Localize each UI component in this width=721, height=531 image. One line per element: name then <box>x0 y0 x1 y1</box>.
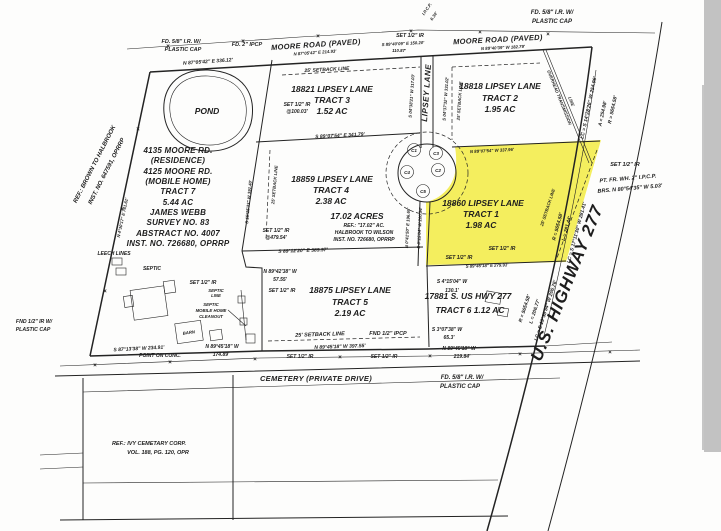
note-pt-fr-1: PT. FR. WH. 2" I.P.C.P. <box>599 173 657 184</box>
tract5-setback-label: 25' SETBACK LINE <box>294 331 345 339</box>
tract2-line-3: 1.95 AC <box>485 104 517 114</box>
cemetery-parcel-mid-line <box>83 480 498 483</box>
fence-x-icon: × <box>608 350 612 356</box>
bearing-s043821-317: S 04°38'21" W 317.03' <box>407 73 415 118</box>
tract7-label: 4135 MOORE RD. (RESIDENCE) 4125 MOORE RD… <box>127 146 230 248</box>
tract5-line-1: 18875 LIPSEY LANE <box>309 285 391 295</box>
bearing-s041504: S 4°15'04" W <box>437 279 469 285</box>
plat-drawing: × × × × × × × × × × × × × × × × FD. 5/8"… <box>0 0 721 531</box>
tract4-line-3: 2.38 AC <box>315 196 348 206</box>
monument-set12-top: SET 1/2" IR <box>396 33 424 39</box>
tract7-line-5: TRACT 7 <box>160 187 196 196</box>
cleanout-label-2: MOBILE HOME <box>196 308 227 313</box>
culdesac-label-c5: C5 <box>420 189 426 194</box>
bearing-n894238: N 89°42'38" W <box>263 269 298 275</box>
leech-lines-label: LEECH LINES <box>97 251 131 257</box>
tract6-west-line <box>427 266 429 347</box>
monument-set12-s2: SET 1/2" IR <box>371 354 398 360</box>
pond-label: POND <box>195 106 220 116</box>
tract4-line-1: 18859 LIPSEY LANE <box>291 174 373 184</box>
bearing-n894518-174: N 89°45'18" W <box>205 344 240 350</box>
tract7-line-1: 4135 MOORE RD. <box>142 146 212 155</box>
monument-ipcp-dist: 6.34' <box>429 10 439 21</box>
tract3-line-3: 1.52 AC <box>317 106 349 116</box>
tract7-line-4: (MOBILE HOME) <box>145 177 210 186</box>
monument-set12-s1: SET 1/2" IR <box>287 354 314 360</box>
tract4-line-2: TRACT 4 <box>313 185 349 195</box>
leech-field-1 <box>112 258 122 265</box>
monument-set12-t5: SET 1/2" IR <box>269 288 296 294</box>
bearing-s001504-200: S 0°15'04" W 200.94' <box>416 206 423 249</box>
monument-fd58-topleft: FD. 5/8" I.R. W/ <box>162 39 202 45</box>
lipsey-lane-label: LIPSEY LANE <box>420 64 433 122</box>
barn-label: BARN <box>182 329 196 336</box>
area-note-2: HALBROOK TO WILSON <box>335 230 394 236</box>
tract7-line-8: SURVEY NO. 83 <box>147 218 210 227</box>
curve1-lc: LC = S 14°28'26" W 254.96' <box>580 75 599 139</box>
fence-x-icon: × <box>546 32 550 38</box>
tract1-line-2: TRACT 1 <box>463 209 499 219</box>
distance-5755: 57.55' <box>273 277 288 283</box>
monument-set12-t4: SET 1/2" IR <box>263 228 290 234</box>
cleanout-label-1: SEPTIC <box>203 302 219 307</box>
fence-x-icon: × <box>253 357 257 363</box>
monument-ipcp-diag: I.P.C.P. <box>421 2 433 16</box>
bearing-n894039-182: N 89°40'39" W 182.79' <box>481 44 526 51</box>
house-building <box>130 286 168 320</box>
bearing-s894009-150: S 89°40'09" E 150.20' <box>382 40 426 47</box>
tract7-line-6: 5.44 AC <box>163 198 193 207</box>
bearing-n043017-761: N 4°30'17" E 761.61' <box>116 196 130 238</box>
monument-fd58-topright-cap: PLASTIC CAP <box>532 19 573 25</box>
fence-x-icon: × <box>168 360 172 366</box>
distance-653: 65.3' <box>444 335 456 341</box>
tract5-setback-line <box>268 337 420 341</box>
tract3-setback-label: 25' SETBACK LINE <box>303 66 350 74</box>
tract7-line-2: (RESIDENCE) <box>151 156 205 165</box>
fence-x-icon: × <box>136 127 140 133</box>
tract5-line-3: 2.19 AC <box>334 308 367 318</box>
monument-set12-t3-dist: @100.03' <box>286 109 308 115</box>
bearing-s030738: S 3°07'38" W <box>432 327 464 333</box>
tract7-line-10: INST. NO. 726680, OPRRP <box>127 239 230 248</box>
cleanout-label-3: CLEANOUT <box>199 314 223 319</box>
fence-x-icon: × <box>428 354 432 360</box>
culdesac-label-c1: C1 <box>411 148 417 153</box>
monument-fd58-bottom-cap: PLASTIC CAP <box>440 384 481 390</box>
tract2-line-2: TRACT 2 <box>482 93 518 103</box>
septic-line-label-2: LINE <box>211 293 221 298</box>
tract7-line-9: ABSTRACT NO. 4007 <box>135 229 220 238</box>
culdesac-label-c3: C3 <box>433 151 439 156</box>
septic-label: SEPTIC <box>143 266 161 272</box>
bearing-n870542-336: N 87°05'42" E 336.12' <box>183 57 234 67</box>
shed-building <box>209 329 222 341</box>
monument-set12-t1a: SET 1/2" IR <box>489 246 516 252</box>
bearing-n004150-196: N 0°41'50" E 196.65' <box>404 207 411 249</box>
tract1-line-1: 18860 LIPSEY LANE <box>442 198 524 208</box>
cemetery-notch-top <box>40 453 83 455</box>
south-line-extension <box>545 342 612 346</box>
tract2-line-1: 18818 LIPSEY LANE <box>459 81 541 91</box>
cemetery-drive-label: CEMETERY (PRIVATE DRIVE) <box>260 374 372 383</box>
fence-x-icon: × <box>338 355 342 361</box>
tract3-line-1: 18821 LIPSEY LANE <box>291 84 373 94</box>
monument-set12-highway: SET 1/2" IR <box>610 162 640 168</box>
cemetery-parcel-south <box>60 516 508 520</box>
highway-west-row-line <box>487 47 592 531</box>
tract6-line-1: 17881 S. US HWY 277 <box>425 291 513 301</box>
septic-box-3 <box>246 334 255 343</box>
bearing-n894518-219: N 89°45'18" W <box>442 346 477 352</box>
bearing-s890754-341: S 89°07'54" E 341.79' <box>315 132 366 141</box>
area-note-1: REF.: "17.02" AC. <box>344 223 385 229</box>
tract1-line-3: 1.98 AC <box>466 220 498 230</box>
fence-x-icon: × <box>93 363 97 369</box>
monument-fd58-topright: FD. 5/8" I.R. W/ <box>531 10 575 16</box>
tract2-setback-top <box>452 63 540 67</box>
point-on-conc-label: POINT ON CONC. <box>139 353 181 359</box>
area-17acres-label: 17.02 ACRES <box>330 211 383 221</box>
monument-fnd12-left-cap: PLASTIC CAP <box>16 327 51 333</box>
curve1-r: R = 5654.58' <box>607 94 619 124</box>
monument-fd58-topleft-cap: PLASTIC CAP <box>165 47 202 53</box>
tract3-line-2: TRACT 3 <box>314 95 350 105</box>
monument-fd2ipcp: FD. 2" IPCP <box>232 42 263 48</box>
tract7-line-7: JAMES WEBB <box>150 208 206 217</box>
tract6-line-2: TRACT 6 1.12 AC <box>435 305 505 315</box>
distance-11087: 110.87' <box>392 48 407 53</box>
culdesac-label-c4: C4 <box>404 170 410 175</box>
monument-set12-t1b: SET 1/2" IR <box>446 255 473 261</box>
monument-set12-septic: SET 1/2" IR <box>190 280 217 286</box>
monument-fnd12-left: FND 1/2" IR W/ <box>16 319 53 325</box>
leech-field-2 <box>116 268 126 275</box>
bearing-s043732-331: S 04°37'32" W 331.02' <box>441 76 449 121</box>
fence-x-icon: × <box>518 352 522 358</box>
note-ivy-1: REF.: IVY CEMETARY CORP. <box>112 441 187 447</box>
area-note-3: INST. NO. 726680, OPRRP <box>333 237 395 243</box>
tract4-setback-line <box>266 150 270 240</box>
monument-set12-t4-dist: @479.54' <box>265 235 287 241</box>
tract3-setback-line <box>282 67 420 75</box>
bearing-s894518-279: S 89°45'18" E 279.91' <box>466 262 510 269</box>
fence-x-icon: × <box>103 289 107 295</box>
distance-21984: 219.84' <box>453 354 471 360</box>
monument-fnd12ipcp: FND 1/2" IPCP <box>369 331 407 337</box>
survey-plat: × × × × × × × × × × × × × × × × FD. 5/8"… <box>0 0 721 531</box>
scan-edge-strip <box>704 0 721 452</box>
tract7-line-3: 4125 MOORE RD. <box>142 167 212 176</box>
cemetery-notch-bottom <box>40 467 83 469</box>
bearing-s891220-389: S 89°12'20" E 389.97' <box>278 247 329 255</box>
bearing-s152533-391: S 15°25'33" W 391.40' <box>244 179 253 224</box>
house-addition-2 <box>163 280 176 293</box>
monument-set12-t3: SET 1/2" IR <box>284 102 311 108</box>
culdesac-label-c2: C2 <box>435 168 441 173</box>
distance-17489: 174.89' <box>213 352 230 358</box>
note-ivy-2: VOL. 188, PG. 120, OPR <box>127 450 189 456</box>
monument-fd58-bottom: FD. 5/8" I.R. W/ <box>441 375 485 381</box>
tract5-line-2: TRACT 5 <box>332 297 368 307</box>
tract4-tract5-line <box>242 247 423 251</box>
tract4-setback-label: 25' SETBACK LINE <box>270 165 278 205</box>
